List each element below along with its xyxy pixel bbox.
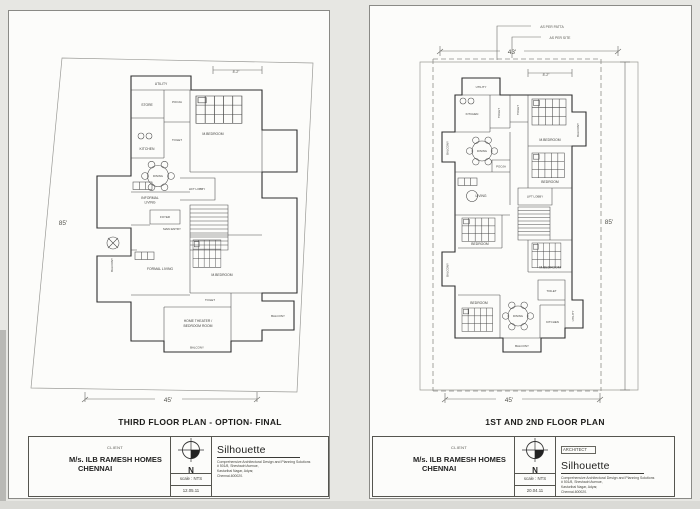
room-label: TOILET: [497, 108, 501, 118]
right-plan-title: 1ST AND 2ND FLOOR PLAN: [485, 417, 605, 427]
room-label: BALCONY: [190, 346, 204, 350]
room-label: LIFT LOBBY: [189, 187, 205, 191]
room-label: HOME THEATER /: [184, 319, 213, 323]
room-label: BALCONY: [576, 123, 580, 137]
room-label: MAIN ENTRY: [163, 227, 181, 231]
dim-85-left: 85': [59, 220, 67, 227]
room-label: DINING: [153, 174, 164, 178]
room-label: STORE: [141, 103, 153, 107]
date-row: 20.04.11: [515, 485, 555, 497]
dim-small: 8'-2": [543, 73, 551, 77]
left-plan-title: THIRD FLOOR PLAN - OPTION- FINAL: [118, 417, 282, 427]
room-label: UTILITY: [571, 311, 575, 322]
room-label: LIVING: [144, 201, 155, 205]
room-label: UTILITY: [155, 82, 168, 86]
left-interior-walls: [97, 90, 262, 341]
sofa-icon: [135, 252, 154, 260]
room-label: BALCONY: [271, 314, 285, 318]
room-label: TOILET: [172, 138, 182, 142]
room-label: TOILET: [205, 298, 215, 302]
note-as-per-patta: AS PER PATTA: [540, 25, 564, 29]
room-label: M.BEDROOM: [539, 266, 560, 270]
room-label: BALCONY: [515, 344, 529, 348]
sofa-icon: [458, 178, 477, 186]
firm-name: Silhouette: [561, 460, 644, 474]
date-row: 12.05.11: [171, 485, 211, 497]
dim-43-top: 43': [508, 49, 516, 56]
architect-label: ARCHITECT: [561, 446, 596, 454]
stove-icon: [460, 98, 466, 104]
room-label: POOJA: [496, 165, 506, 169]
bed-icon: [532, 153, 564, 178]
sofa-icon: [133, 182, 152, 190]
room-label: DINING: [477, 149, 488, 153]
room-label: KITCHEN: [140, 147, 155, 151]
left-site-boundary: [31, 58, 313, 392]
compass-cell: N scale : NTS 12.05.11: [170, 437, 212, 496]
room-label: INFORMAL: [141, 196, 159, 200]
scale-row: scale : NTS: [515, 473, 555, 485]
room-label: LIFT LOBBY: [527, 195, 543, 199]
room-label: FORMAL LIVING: [147, 267, 173, 271]
bed-icon: [462, 218, 495, 241]
stairs-icon: [518, 211, 550, 236]
room-label: DINING: [513, 314, 524, 318]
room-label: LIVING: [475, 194, 486, 198]
room-label: FOYER: [160, 215, 170, 219]
room-label: BEDROOM: [541, 180, 559, 184]
bed-icon: [193, 240, 221, 267]
bed-icon: [462, 308, 493, 331]
room-label: M.BEDROOM: [211, 273, 232, 277]
room-label: TOILET: [546, 289, 556, 293]
planter-icon: [108, 238, 118, 248]
left-building-outline: [97, 76, 297, 352]
scale-row: scale : NTS: [171, 473, 211, 485]
bed-icon: [196, 96, 242, 123]
room-label: KITCHEN: [546, 320, 559, 324]
room-label: POOJA: [172, 100, 182, 104]
title-block-left: CLIENT M/s. ILB RAMESH HOMES CHENNAI N s…: [28, 436, 329, 497]
room-label: BALCONY: [446, 141, 450, 155]
north-compass-icon: [176, 438, 206, 462]
room-label: BALCONY: [110, 258, 114, 272]
room-label: TOILET: [516, 105, 520, 115]
dim-45-left: 45': [164, 397, 172, 404]
right-floor-plan: AS PER PATTA AS PER SITE 43' 85' UTILITY…: [420, 25, 638, 427]
bed-icon: [532, 243, 561, 268]
room-label: UTILITY: [476, 85, 487, 89]
room-label: M.BEDROOM: [539, 138, 560, 142]
stove-icon: [146, 133, 152, 139]
firm-address-3: Chennai-600020.: [561, 490, 676, 495]
dim-small: 8'-2": [233, 70, 241, 74]
stairs-icon: [190, 209, 228, 245]
dim-85-right: 85': [605, 219, 613, 226]
room-label: BALCONY: [446, 263, 450, 277]
room-label: BEDROOM ROOM: [183, 324, 212, 328]
north-compass-icon: [520, 438, 550, 462]
title-block-right: CLIENT M/s. ILB RAMESH HOMES CHENNAI N s…: [372, 436, 675, 497]
room-label: BEDROOM: [471, 242, 489, 246]
dim-45-right: 45': [505, 397, 513, 404]
firm-name: Silhouette: [217, 444, 300, 458]
architect-cell: ARCHITECT Silhouette Comprehensive Archi…: [554, 437, 676, 496]
architect-cell: Silhouette Comprehensive Architectural D…: [210, 437, 330, 496]
compass-cell: N scale : NTS 20.04.11: [514, 437, 556, 496]
firm-address-3: Chennai-600020.: [217, 474, 330, 479]
bed-icon: [532, 99, 566, 125]
plan-drawing-layer: UTILITY STORE KITCHEN POOJA TOILET M.BED…: [0, 0, 700, 509]
stove-icon: [138, 133, 144, 139]
right-site-outer: [420, 62, 638, 390]
stove-icon: [468, 98, 474, 104]
room-label: M.BEDROOM: [202, 132, 223, 136]
room-label: KITCHEN: [466, 112, 479, 116]
left-floor-plan: UTILITY STORE KITCHEN POOJA TOILET M.BED…: [31, 58, 313, 427]
room-label: BEDROOM: [470, 301, 488, 305]
note-as-per-site: AS PER SITE: [550, 36, 572, 40]
